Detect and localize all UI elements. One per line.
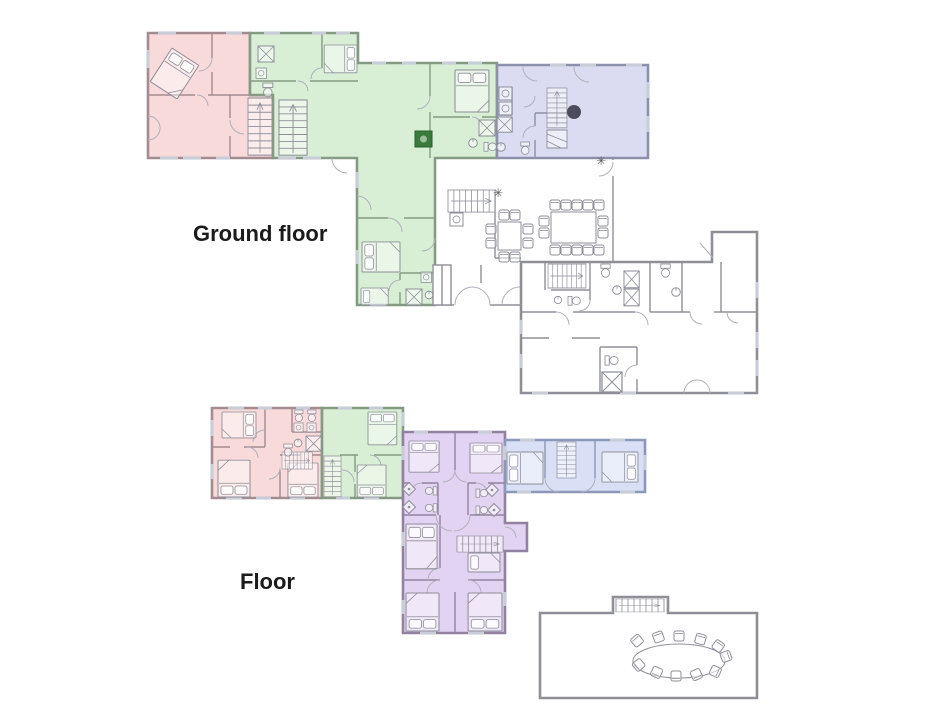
door-arc: [727, 312, 738, 323]
chair-icon: [539, 228, 549, 238]
washer-icon: [499, 102, 512, 115]
first-floor-label: Floor: [240, 569, 295, 594]
shower-icon: [479, 120, 495, 136]
toilet-icon: [661, 264, 670, 277]
bed-icon: [362, 242, 400, 272]
shower-icon: [406, 289, 422, 305]
toilet-icon: [425, 504, 437, 512]
door-arc: [556, 312, 569, 325]
bed-icon: [406, 524, 437, 569]
bed-icon: [507, 452, 543, 484]
chair-icon: [598, 228, 608, 238]
sink-icon: [554, 296, 561, 303]
winder-stairs-icon: [547, 130, 567, 148]
shower-icon: [602, 372, 622, 392]
door-arc: [684, 380, 710, 393]
counter-icon: [450, 213, 463, 226]
toilet-icon: [605, 356, 618, 365]
column-marker: [567, 105, 581, 119]
toilet-icon: [568, 296, 580, 305]
shower-icon: [306, 436, 321, 451]
stairs-icon: [547, 88, 567, 128]
chair-icon: [674, 631, 684, 641]
stairs-icon: [457, 536, 503, 552]
toilet-icon: [263, 83, 273, 97]
door-arc: [635, 312, 648, 325]
door-arc: [502, 287, 520, 305]
stove-icon: [415, 131, 432, 147]
chair-icon: [572, 200, 582, 210]
sink-icon: [294, 439, 302, 447]
toilet-icon: [601, 264, 610, 277]
door-arc: [332, 158, 347, 173]
shower-icon: [624, 289, 639, 306]
chair-icon: [499, 252, 509, 262]
toilet-icon: [521, 142, 530, 154]
toilet-icon: [284, 444, 293, 456]
bed-icon: [357, 465, 386, 497]
stairs-icon: [279, 100, 307, 155]
washer-icon: [294, 423, 303, 432]
chair-icon: [572, 245, 582, 255]
chair-icon: [510, 252, 520, 262]
chair-icon: [510, 210, 520, 220]
stairs-icon: [616, 599, 664, 612]
chair-icon: [594, 200, 604, 210]
toilet-icon: [476, 506, 488, 514]
washer-icon: [307, 423, 316, 432]
chair-icon: [561, 245, 571, 255]
chair-icon: [630, 634, 644, 648]
vent-symbol: ✳: [596, 154, 606, 168]
sink-icon: [672, 288, 681, 297]
toilet-icon: [476, 489, 488, 497]
ground-floor-plan: ✳ ✳ Ground floor: [148, 33, 757, 393]
door-arc: [690, 312, 702, 324]
shower-icon: [258, 46, 274, 62]
chair-icon: [539, 216, 549, 226]
bed-icon: [218, 460, 250, 497]
bed-icon: [409, 441, 439, 472]
chair-icon: [671, 671, 681, 681]
bed-icon: [470, 443, 502, 473]
shower-icon: [497, 117, 512, 132]
chair-icon: [652, 631, 665, 644]
bed-icon: [361, 288, 388, 305]
toilet-icon: [295, 410, 303, 422]
chair-icon: [583, 245, 593, 255]
dining-table: [498, 222, 521, 250]
sink-icon: [425, 291, 433, 299]
sink-icon: [497, 143, 506, 152]
stairs-icon: [448, 190, 495, 212]
bed-icon: [324, 45, 357, 73]
chair-icon: [550, 245, 560, 255]
chair-icon: [486, 224, 496, 234]
chair-icon: [486, 238, 496, 248]
chair-icon: [594, 245, 604, 255]
ground-floor-label: Ground floor: [193, 221, 328, 246]
bed-icon: [468, 553, 500, 572]
washer-icon: [421, 272, 431, 282]
chair-icon: [499, 210, 509, 220]
bed-icon: [455, 70, 489, 112]
first-floor-plan: Floor: [212, 408, 757, 698]
meeting-room: [630, 631, 732, 682]
chair-icon: [694, 633, 706, 645]
washer-icon: [256, 68, 266, 78]
stairs-icon: [557, 442, 576, 478]
chair-icon: [598, 216, 608, 226]
bed-icon: [406, 593, 439, 631]
stairs-icon: [548, 264, 586, 288]
chair-icon: [561, 200, 571, 210]
bed-icon: [222, 412, 256, 438]
bed-icon: [468, 593, 502, 631]
bed-icon: [602, 452, 638, 482]
washer-icon: [499, 87, 512, 100]
floorplan-canvas: ✳ ✳ Ground floor: [0, 0, 950, 713]
toilet-icon: [308, 410, 316, 422]
toilet-icon: [484, 142, 496, 151]
door-arc: [455, 287, 490, 305]
chair-icon: [523, 238, 533, 248]
dining-area: [486, 200, 608, 262]
bed-icon: [368, 412, 397, 445]
floorplan-page: ✳ ✳ Ground floor: [0, 0, 950, 713]
sink-icon: [613, 286, 622, 295]
stairs-icon: [324, 456, 341, 497]
chair-icon: [583, 200, 593, 210]
sink-icon: [469, 139, 478, 148]
door-arc: [625, 365, 637, 377]
shower-icon: [624, 271, 639, 288]
stairs-icon: [248, 98, 272, 155]
toilet-icon: [425, 487, 437, 495]
chair-icon: [523, 224, 533, 234]
vent-symbol: ✳: [493, 186, 503, 200]
chair-icon: [550, 200, 560, 210]
dining-table: [551, 212, 596, 243]
